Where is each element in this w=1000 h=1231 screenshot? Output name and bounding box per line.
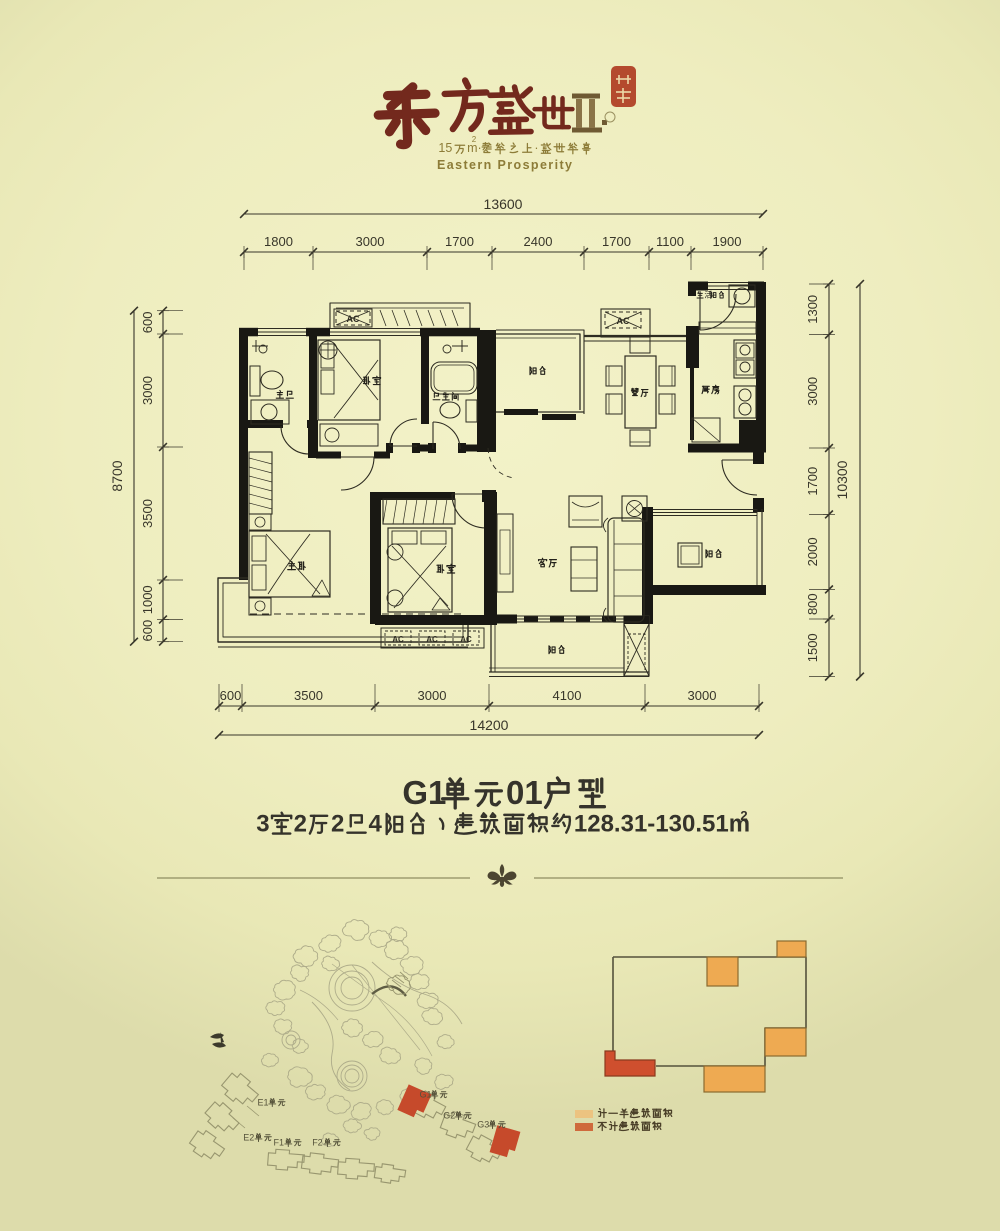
- svg-text:2: 2: [740, 808, 747, 823]
- svg-text:AC: AC: [617, 316, 630, 326]
- svg-text:14200: 14200: [470, 717, 509, 733]
- svg-text:2: 2: [331, 811, 344, 838]
- svg-text:2400: 2400: [524, 234, 553, 249]
- svg-text:10300: 10300: [834, 460, 850, 499]
- svg-text:AC: AC: [426, 635, 438, 644]
- svg-text:600: 600: [220, 688, 242, 703]
- svg-text:8700: 8700: [109, 460, 125, 491]
- svg-text:1100: 1100: [656, 234, 684, 249]
- svg-text:F2: F2: [312, 1137, 323, 1147]
- svg-text:E2: E2: [243, 1132, 254, 1142]
- svg-text:3000: 3000: [356, 234, 385, 249]
- svg-text:600: 600: [140, 312, 155, 334]
- svg-text:3500: 3500: [140, 499, 155, 528]
- svg-text:128.31-130.51m: 128.31-130.51m: [574, 811, 750, 838]
- svg-text:13600: 13600: [484, 196, 523, 212]
- svg-text:3: 3: [256, 811, 269, 838]
- svg-text:AC: AC: [460, 635, 472, 644]
- svg-text:1700: 1700: [805, 467, 820, 496]
- svg-text:2: 2: [472, 135, 477, 144]
- svg-text:1800: 1800: [264, 234, 293, 249]
- svg-text:600: 600: [140, 620, 155, 642]
- svg-text:E1: E1: [258, 1097, 269, 1107]
- svg-text:G3: G3: [477, 1119, 489, 1129]
- svg-text:1500: 1500: [805, 633, 820, 662]
- svg-text:·: ·: [534, 141, 538, 155]
- svg-text:AC: AC: [392, 635, 404, 644]
- svg-text:G1: G1: [402, 774, 446, 811]
- svg-text:3500: 3500: [294, 688, 323, 703]
- svg-text:1700: 1700: [602, 234, 631, 249]
- svg-text:01: 01: [506, 774, 543, 811]
- svg-text:1300: 1300: [805, 295, 820, 324]
- svg-text:F1: F1: [274, 1137, 285, 1147]
- svg-text:4: 4: [369, 811, 383, 838]
- svg-text:3000: 3000: [140, 376, 155, 405]
- svg-text:3000: 3000: [418, 688, 447, 703]
- svg-text:2000: 2000: [805, 537, 820, 566]
- svg-text:3000: 3000: [688, 688, 717, 703]
- svg-text:1900: 1900: [713, 234, 742, 249]
- svg-text:3000: 3000: [805, 377, 820, 406]
- svg-text:1000: 1000: [140, 585, 155, 614]
- svg-text:800: 800: [805, 593, 820, 615]
- svg-text:15: 15: [438, 141, 452, 155]
- svg-text:1700: 1700: [445, 234, 474, 249]
- svg-text:G2: G2: [443, 1110, 455, 1120]
- svg-text:AC: AC: [347, 314, 360, 324]
- svg-text:2: 2: [294, 811, 307, 838]
- svg-text:Eastern Prosperity: Eastern Prosperity: [437, 158, 573, 172]
- svg-text:G1: G1: [420, 1089, 432, 1099]
- svg-text:4100: 4100: [553, 688, 582, 703]
